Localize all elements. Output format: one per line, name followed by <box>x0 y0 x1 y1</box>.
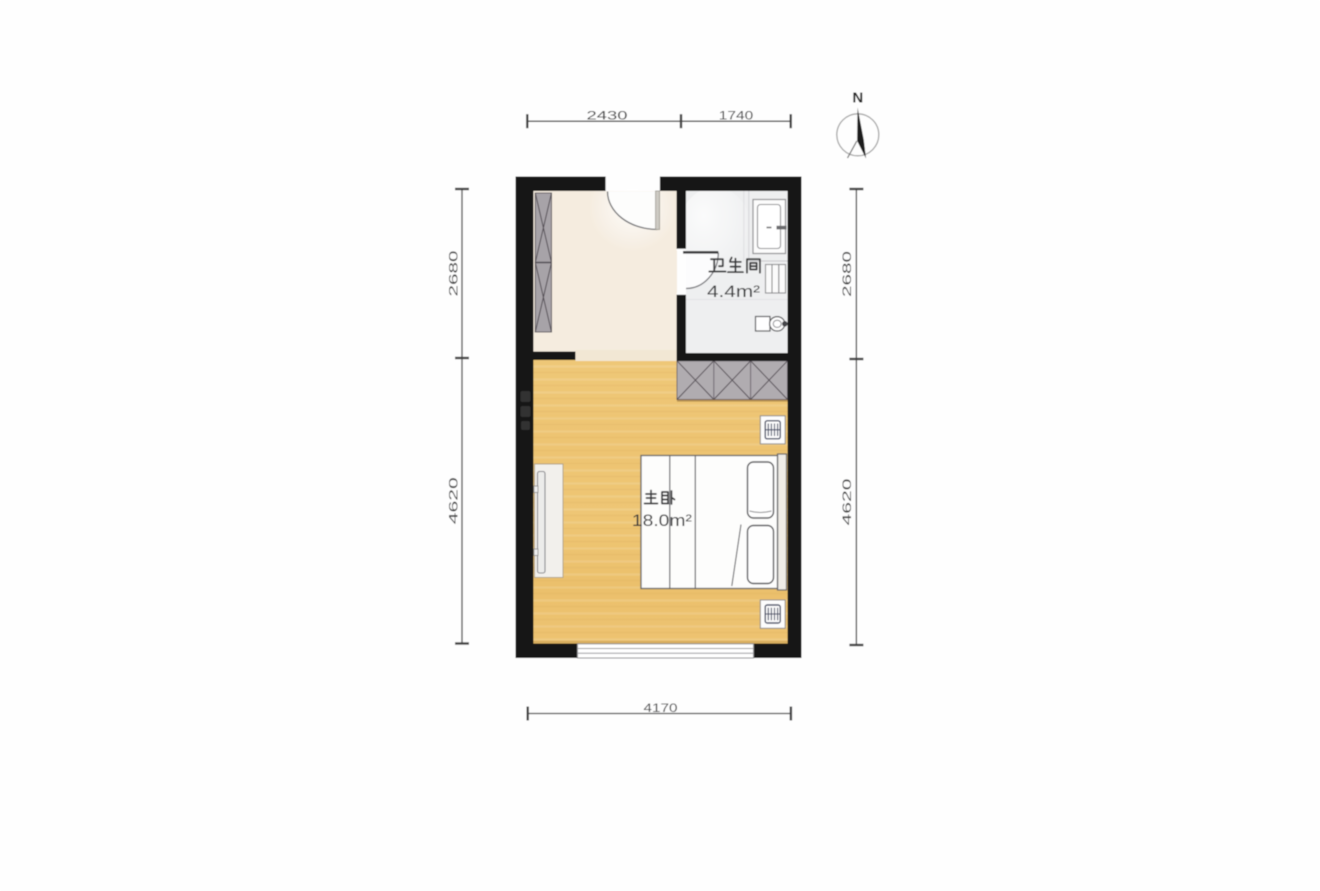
svg-text:4620: 4620 <box>840 478 854 526</box>
svg-text:2430: 2430 <box>587 109 628 123</box>
svg-text:18.0m²: 18.0m² <box>632 512 693 530</box>
svg-text:4.4m²: 4.4m² <box>707 282 760 301</box>
svg-text:2680: 2680 <box>447 250 461 297</box>
svg-text:4620: 4620 <box>447 477 461 525</box>
svg-text:N: N <box>852 90 863 107</box>
svg-text:1740: 1740 <box>719 109 754 123</box>
svg-text:2680: 2680 <box>840 250 854 297</box>
svg-text:4170: 4170 <box>644 701 678 715</box>
